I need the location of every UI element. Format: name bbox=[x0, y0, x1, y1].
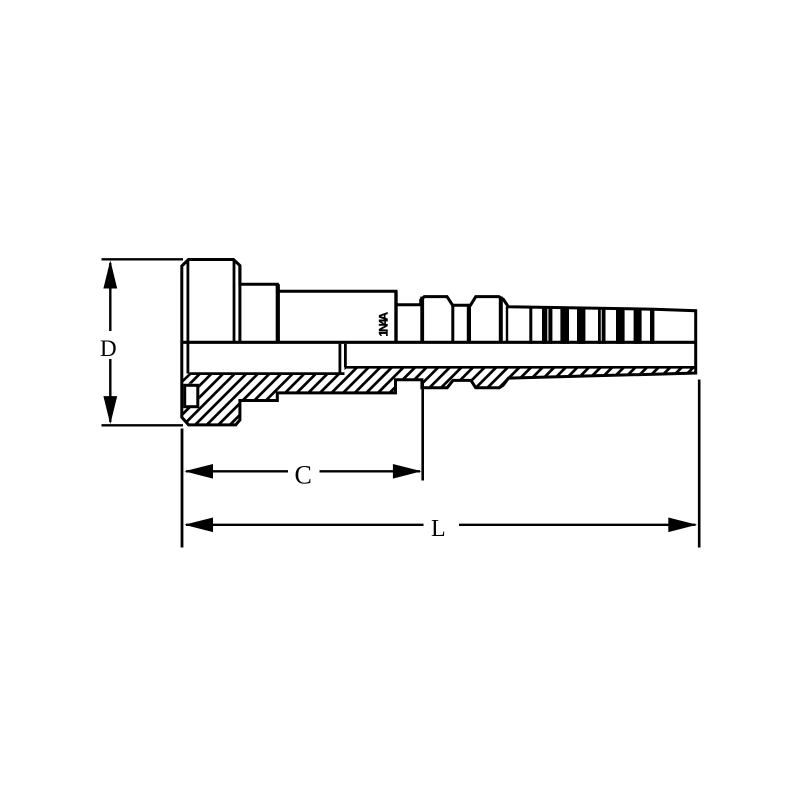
svg-text:1N4A: 1N4A bbox=[377, 312, 391, 337]
svg-text:D: D bbox=[100, 336, 117, 361]
svg-text:C: C bbox=[295, 460, 312, 489]
svg-text:L: L bbox=[431, 516, 446, 542]
